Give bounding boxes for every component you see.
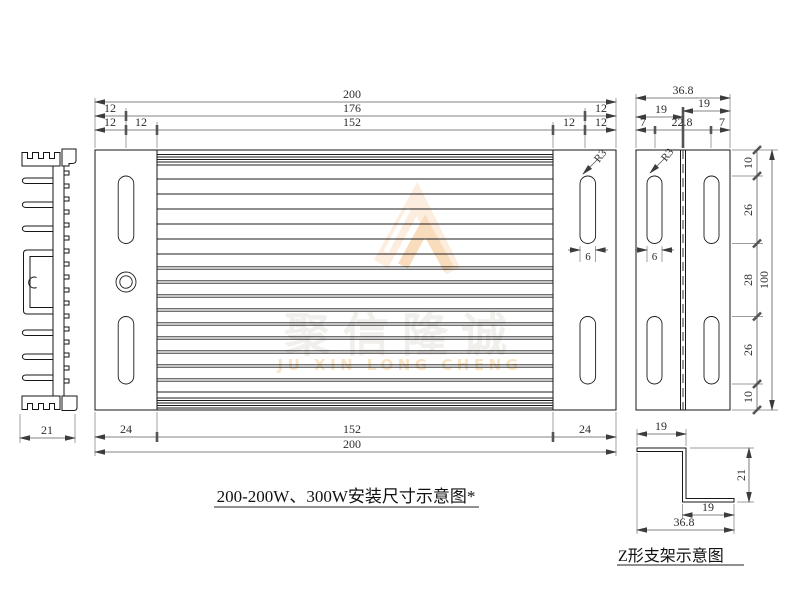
dim-label: 26 [741,204,755,216]
spine-tooth [64,197,69,201]
z-bracket-caption: Z形支架示意图 [618,546,724,565]
slot [580,317,596,385]
dim-label: 12 [104,115,116,129]
section-fin [23,375,54,381]
heatsink-section-view: 21 [20,149,77,443]
spine-tooth [64,236,69,240]
section-fin [23,202,54,208]
spine-tooth [64,379,69,383]
spine-tooth [64,223,69,227]
main-caption-group: 200-200W、300W安装尺寸示意图* [214,487,479,507]
spine-tooth [64,353,69,357]
watermark: 聚信隆诚 JU XIN LONG CHENG [277,199,523,374]
dim-label: 200 [343,87,361,101]
spine-tooth [64,314,69,318]
section-spine-teeth [64,171,69,383]
spine-tooth [64,366,69,370]
top-view: 聚信隆诚 JU XIN LONG CHENG R3 6 [95,147,616,410]
spine-tooth [64,288,69,292]
slot [704,317,719,385]
dim-label: 24 [579,422,591,436]
section-top-block [62,149,76,166]
spine-tooth [64,340,69,344]
spine-tooth [64,210,69,214]
dim-label: 19 [698,96,710,110]
spine-tooth [64,262,69,266]
watermark-cn-text: 聚信隆诚 [283,308,520,362]
spine-tooth [64,249,69,253]
section-fin [23,226,54,232]
dim-label: 10 [741,157,755,169]
dim-label: 26 [741,344,755,356]
dim-label: 12 [595,115,607,129]
slot-width-label: 6 [652,251,658,263]
z-bracket-view: 19 21 19 36.8 Z形支架示意图 [617,419,754,565]
dim-label: 200 [343,437,361,451]
section-fin [23,354,54,360]
dim-label: 28 [741,274,755,286]
dim-label: 12 [595,101,607,115]
spine-tooth [64,184,69,188]
top-view-bottom-dimensions: 24 152 24 200 [95,412,616,456]
slot [704,176,719,244]
slot [580,176,596,244]
slot [118,176,134,244]
section-bottom-block [62,396,77,411]
dim-label: 21 [734,469,748,481]
dim-label: 22.8 [672,115,693,129]
dim-label: 19 [655,102,667,116]
dim-label-section-width: 21 [41,423,53,437]
section-channel-outer [24,250,54,314]
dim-label: 152 [343,422,361,436]
side-view-top-dimensions: 36.8 19 19 7 22.8 7 [636,83,730,148]
cad-drawing: 21 聚信隆诚 JU XIN LONG CHENG R3 6 [0,0,800,600]
dim-label: 12 [104,101,116,115]
side-view-right-dimensions: 10 26 28 26 10 100 [732,146,778,414]
dim-label: 7 [640,115,646,129]
drawing-sheet: 21 聚信隆诚 JU XIN LONG CHENG R3 6 [0,0,800,600]
dim-label: 19 [702,500,714,514]
section-top-comb [22,153,60,167]
spine-tooth [64,275,69,279]
spine-tooth [64,327,69,331]
dim-label: 36.8 [673,83,694,97]
dim-label: 12 [135,115,147,129]
dim-label: 7 [719,115,725,129]
dim-label: 100 [757,271,771,289]
section-fins [23,178,54,381]
side-view: R3 6 [635,146,730,410]
slot [647,176,662,244]
spine-tooth [64,301,69,305]
dim-label: 10 [741,391,755,403]
slot [647,317,662,385]
section-channel-inner [30,257,53,308]
ground-hole-outer [116,272,136,292]
dim-label: 152 [343,115,361,129]
dim-label: 19 [655,419,667,433]
top-view-top-dimensions: 200 12 176 12 12 12 152 12 12 [95,87,616,148]
dim-label: 176 [343,101,361,115]
section-fin [23,330,54,336]
section-bottom-comb [22,396,60,410]
dim-label: 12 [563,115,575,129]
slot [118,317,134,385]
slot-width-label: 6 [585,251,591,263]
ground-hole-inner [120,276,132,288]
z-bracket-outline [637,448,734,502]
section-fin [23,178,54,184]
dim-label: 24 [120,422,132,436]
spine-tooth [64,171,69,175]
main-caption: 200-200W、300W安装尺寸示意图* [217,487,476,506]
dim-label: 36.8 [674,515,695,529]
